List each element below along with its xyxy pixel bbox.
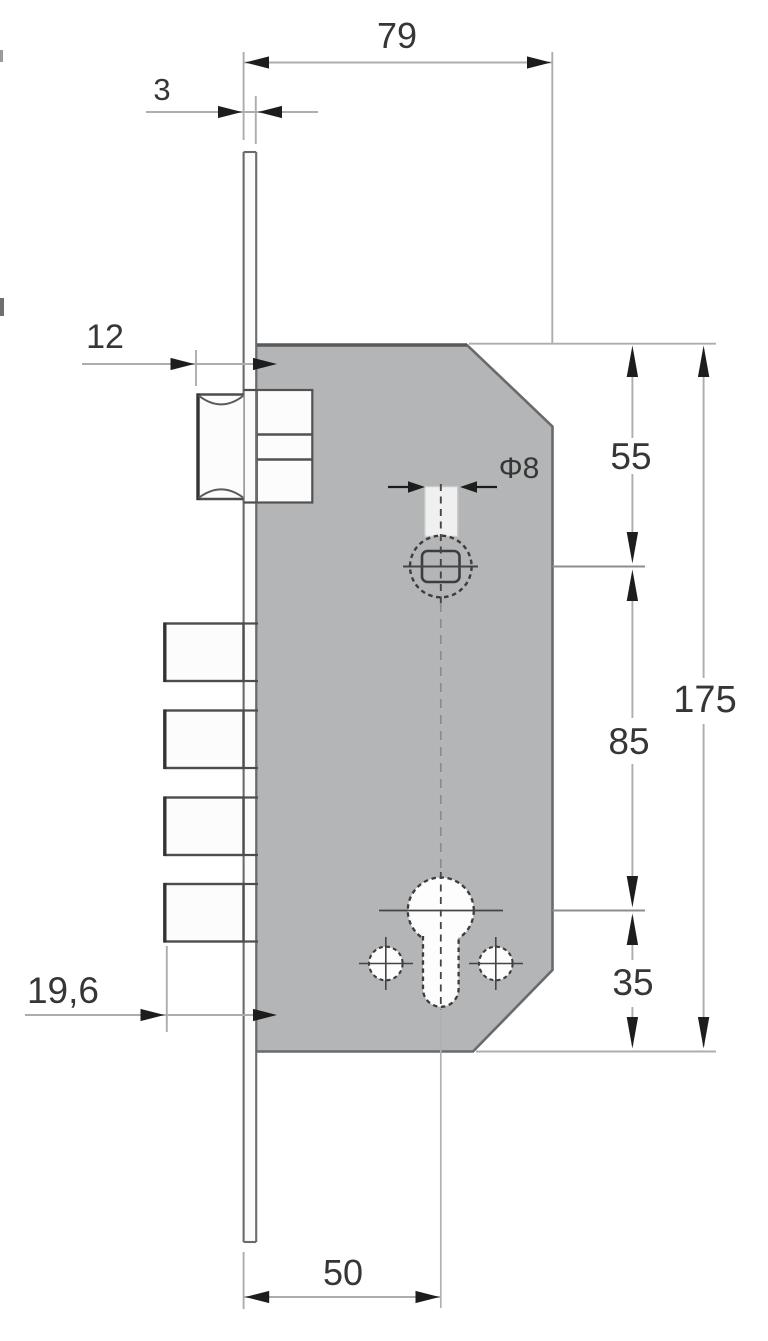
faceplate-fill bbox=[243, 152, 257, 1242]
arrow bbox=[627, 532, 638, 564]
arrow bbox=[698, 1017, 709, 1049]
dimension-faceplate-thickness: 3 bbox=[146, 72, 318, 144]
arrow bbox=[171, 358, 195, 370]
deadbolt-1 bbox=[165, 624, 244, 682]
drawing-page: Φ8 bbox=[0, 0, 768, 1341]
dimension-label: 19,6 bbox=[27, 970, 99, 1011]
dimension-label: 55 bbox=[610, 436, 651, 477]
dimension-cylinder-to-bottom: 35 bbox=[612, 914, 653, 1049]
deadbolt-4 bbox=[165, 884, 244, 942]
dimension-top-to-follower: 55 bbox=[610, 346, 651, 564]
arrow bbox=[627, 876, 638, 908]
dimension-total-height: 175 bbox=[673, 346, 736, 1049]
mortise-lock-technical-drawing: Φ8 bbox=[0, 0, 768, 1341]
dimension-follower-to-cylinder: 85 bbox=[608, 570, 649, 908]
cylinder-stem bbox=[423, 936, 459, 1007]
arrow bbox=[258, 106, 282, 118]
dimension-label: 12 bbox=[86, 318, 124, 356]
dimension-total-width: 79 bbox=[244, 15, 553, 343]
arrow bbox=[218, 106, 242, 118]
deadbolt-3 bbox=[165, 798, 244, 856]
latch-bolt-fill bbox=[198, 395, 244, 500]
arrow bbox=[416, 1291, 440, 1303]
arrow bbox=[527, 56, 551, 68]
dimension-label: 175 bbox=[673, 679, 736, 721]
deadbolt-2 bbox=[165, 711, 244, 769]
scan-artifact bbox=[0, 298, 4, 316]
faceplate bbox=[243, 152, 257, 1242]
follower-square-label: Φ8 bbox=[499, 452, 540, 485]
arrow bbox=[698, 346, 709, 378]
arrow bbox=[245, 56, 269, 68]
arrow bbox=[627, 570, 638, 602]
arrow bbox=[627, 346, 638, 378]
scan-artifact bbox=[0, 50, 3, 62]
arrow bbox=[627, 1017, 638, 1049]
arrow bbox=[245, 1291, 269, 1303]
dimension-deadbolt-projection: 19,6 bbox=[25, 946, 277, 1032]
arrow bbox=[141, 1009, 165, 1021]
arrow bbox=[627, 914, 638, 946]
dimension-label: 79 bbox=[377, 15, 417, 56]
latch-housing-cutout bbox=[257, 390, 313, 503]
dimension-label: 85 bbox=[608, 721, 649, 762]
latch-housing bbox=[257, 390, 313, 503]
dimension-backset: 50 bbox=[244, 1012, 441, 1309]
dimension-label: 35 bbox=[612, 962, 653, 1003]
dimension-label: 50 bbox=[323, 1252, 363, 1293]
dimension-label: 3 bbox=[153, 72, 170, 107]
